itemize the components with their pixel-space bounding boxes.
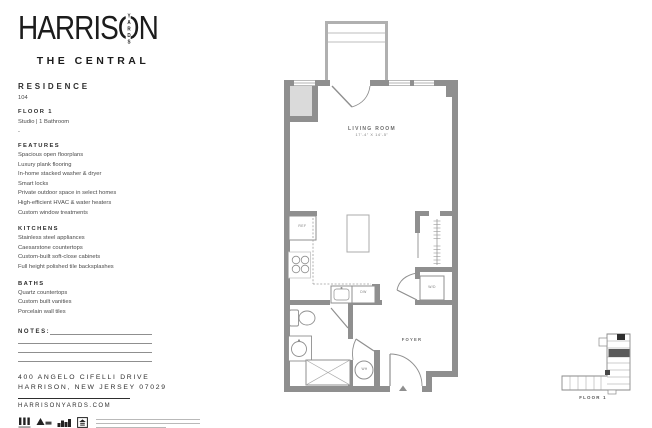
residence-type: Studio | 1 Bathroom (18, 119, 186, 125)
feature-item: Custom window treatments (18, 209, 186, 219)
feature-item: Luxury plank flooring (18, 161, 186, 171)
brand-wordmark: HARRISOYARDSN (18, 12, 186, 54)
brand-subtitle: THE CENTRAL (18, 55, 168, 67)
key-plan-highlighted-unit (609, 349, 630, 357)
footer-logos (18, 417, 186, 428)
key-plan-floor-label: FLOOR 1 (570, 395, 616, 400)
info-panel: HARRISOYARDSN THE CENTRAL RESIDENCE 104 … (18, 12, 186, 428)
shaft-area (290, 86, 312, 116)
feature-item: Smart locks (18, 180, 186, 190)
refrigerator (289, 216, 316, 240)
living-room-label: LIVING ROOM (322, 126, 422, 132)
kitchen-item: Stainless steel appliances (18, 234, 186, 244)
kitchen-island (347, 215, 369, 252)
address-line-2: HARRISON, NEW JERSEY 07029 (18, 383, 186, 393)
features-list: Spacious open floorplans Luxury plank fl… (18, 151, 186, 218)
water-heater-label: WH (355, 367, 374, 371)
living-room-dimensions: 17'-4" X 14'-5" (322, 133, 422, 137)
range (289, 252, 311, 278)
bath-item: Quartz countertops (18, 289, 186, 299)
city-skyline-icon (57, 417, 72, 428)
residence-heading: RESIDENCE (18, 82, 186, 91)
bath-item: Custom built vanities (18, 298, 186, 308)
wd-door-leaf (397, 290, 417, 300)
feature-item: High-efficient HVAC & water heaters (18, 199, 186, 209)
notes-line (18, 335, 152, 344)
bath-item: Porcelain wall tiles (18, 308, 186, 318)
address: 400 ANGELO CIFELLI DRIVE HARRISON, NEW J… (18, 373, 186, 393)
kitchens-heading: KITCHENS (18, 226, 186, 232)
entry-door-swing (390, 354, 422, 386)
baths-list: Quartz countertops Custom built vanities… (18, 289, 186, 318)
disclaimer-text (96, 419, 200, 428)
wd-door-swing (397, 273, 417, 290)
address-line-1: 400 ANGELO CIFELLI DRIVE (18, 373, 186, 383)
toilet-bowl (299, 311, 315, 325)
dishwasher (352, 286, 375, 303)
page: { "brand": { "logo_part1": "HARRIS", "lo… (0, 0, 652, 416)
floor-heading: FLOOR 1 (18, 109, 186, 115)
brand-logo: HARRISOYARDSN THE CENTRAL (18, 12, 186, 67)
baths-heading: BATHS (18, 281, 186, 287)
notes-line (18, 344, 152, 353)
residence-number: 104 (18, 95, 186, 101)
bath-door-leaf (331, 308, 348, 328)
key-plan (562, 334, 630, 394)
kitchen-item: Full height polished tile backsplashes (18, 263, 186, 273)
features-heading: FEATURES (18, 143, 186, 149)
foyer-label: FOYER (388, 337, 436, 342)
divider-rule (18, 398, 130, 399)
website-url: HARRISONYARDS.COM (18, 403, 186, 409)
logo-text-left: HARRIS (18, 12, 118, 45)
balcony (325, 21, 388, 86)
kitchen-item: Caesarstone countertops (18, 244, 186, 254)
feature-item: In-home stacked washer & dryer (18, 170, 186, 180)
toilet-tank (290, 310, 299, 326)
balcony-door-swing (352, 86, 370, 107)
avis-logo-icon (36, 417, 52, 428)
dishwasher-label: DW (352, 290, 375, 294)
balcony-door-leaf (332, 86, 352, 107)
bath-fixtures (289, 310, 351, 385)
feature-item: Private outdoor space in select homes (18, 189, 186, 199)
notes-line (18, 353, 152, 362)
kitchens-list: Stainless steel appliances Caesarstone c… (18, 234, 186, 272)
wh-door-swing (352, 339, 356, 360)
key-plan-core (617, 334, 625, 340)
feature-item: Spacious open floorplans (18, 151, 186, 161)
harrison-yards-mark-icon (18, 417, 31, 428)
logo-o-yards: OYARDS (118, 12, 139, 45)
kitchen-item: Custom-built soft-close cabinets (18, 253, 186, 263)
separator-dash: - (18, 129, 186, 135)
notes-heading: NOTES: (18, 329, 50, 335)
equal-housing-icon (77, 417, 88, 428)
closet-shelving (434, 219, 441, 265)
notes-line (50, 328, 152, 335)
bath-sink (292, 342, 307, 357)
wh-door-leaf (356, 339, 374, 351)
washer-dryer-label: W/D (420, 285, 444, 289)
refrigerator-label: REF (289, 224, 316, 228)
logo-yards-vertical: YARDS (126, 12, 131, 46)
logo-text-right: N (139, 12, 158, 45)
